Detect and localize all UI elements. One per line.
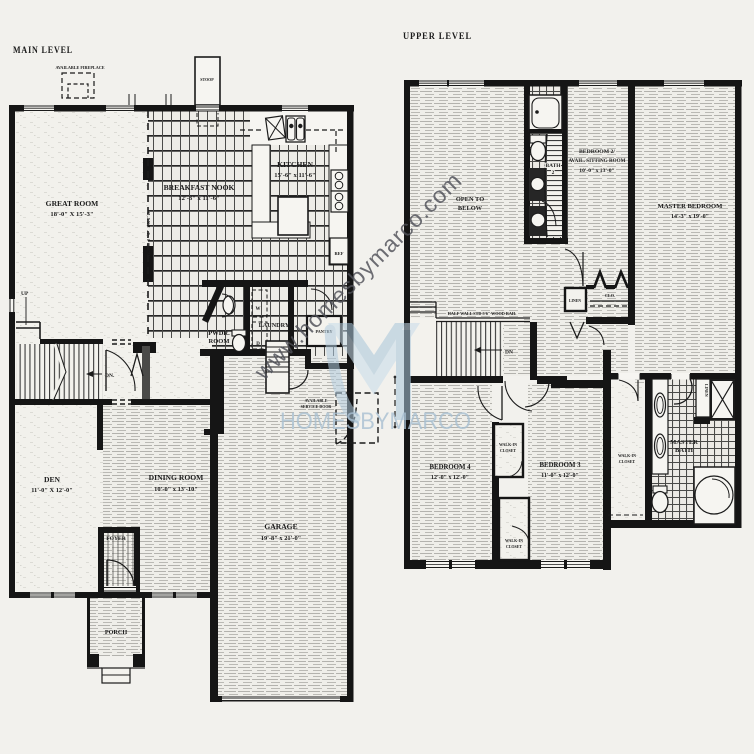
svg-text:BEDROOM 3: BEDROOM 3 (540, 462, 582, 469)
svg-text:DN: DN (505, 350, 513, 356)
svg-text:PORCH: PORCH (105, 629, 128, 636)
svg-text:MAIN LEVEL: MAIN LEVEL (13, 46, 73, 56)
svg-text:CLOSET: CLOSET (506, 544, 523, 549)
svg-text:11'-0" x 12'-0": 11'-0" x 12'-0" (541, 473, 579, 479)
svg-text:CLOSET: CLOSET (500, 448, 517, 453)
svg-text:LINEN: LINEN (704, 384, 709, 397)
svg-text:CLOSET: CLOSET (619, 459, 636, 464)
svg-text:19'-8" x 21'-0": 19'-8" x 21'-0" (261, 535, 301, 542)
svg-text:WALK-IN: WALK-IN (505, 538, 523, 543)
svg-text:AVAIL. SITTING ROOM: AVAIL. SITTING ROOM (569, 158, 626, 164)
svg-text:12'-0" x 12'-0": 12'-0" x 12'-0" (431, 475, 469, 481)
svg-text:UPPER LEVEL: UPPER LEVEL (403, 32, 472, 42)
svg-text:FOYER: FOYER (106, 536, 127, 542)
svg-text:HALF WALL STD 5'6" WOOD RAIL: HALF WALL STD 5'6" WOOD RAIL (448, 311, 517, 316)
svg-text:BATH: BATH (675, 447, 693, 454)
svg-text:BATH: BATH (546, 163, 562, 169)
svg-text:GREAT ROOM: GREAT ROOM (46, 199, 99, 208)
svg-text:GARAGE: GARAGE (264, 522, 297, 531)
svg-text:ROOM: ROOM (209, 338, 230, 345)
svg-text:11'-0" X 12'-0": 11'-0" X 12'-0" (31, 487, 73, 494)
svg-text:D: D (256, 342, 260, 347)
svg-text:2: 2 (552, 170, 555, 176)
svg-text:AVAILABLE: AVAILABLE (305, 398, 328, 403)
svg-text:10'-0" x 13'-0": 10'-0" x 13'-0" (579, 168, 614, 174)
svg-text:STOOP: STOOP (200, 77, 214, 82)
svg-text:BELOW: BELOW (458, 205, 483, 212)
svg-text:PWDR.: PWDR. (208, 330, 230, 337)
svg-text:12'-3" x 11'-6": 12'-3" x 11'-6" (178, 195, 219, 202)
svg-text:WALK-IN: WALK-IN (618, 453, 636, 458)
svg-text:W: W (256, 307, 261, 312)
svg-text:14'-3" x 19'-0": 14'-3" x 19'-0" (671, 214, 709, 220)
svg-text:LINEN: LINEN (569, 299, 581, 303)
svg-text:KITCHEN: KITCHEN (277, 160, 313, 169)
svg-text:10'-0" x 13'-10": 10'-0" x 13'-10" (154, 486, 198, 493)
svg-text:AVAIL 2'-0" EXT'D: AVAIL 2'-0" EXT'D (146, 211, 151, 258)
svg-text:DINING ROOM: DINING ROOM (149, 473, 204, 482)
svg-text:HOMESBYMARCO: HOMESBYMARCO (280, 408, 471, 435)
svg-text:LAUNDRY: LAUNDRY (259, 322, 290, 329)
svg-text:15'-6" x 11'-6": 15'-6" x 11'-6" (274, 172, 315, 179)
svg-text:18'-0" X 15'-3": 18'-0" X 15'-3" (50, 211, 93, 218)
svg-text:OPEN TO: OPEN TO (456, 196, 484, 203)
svg-text:BREAKFAST NOOK: BREAKFAST NOOK (164, 183, 235, 192)
svg-text:BEDROOM 2/: BEDROOM 2/ (579, 149, 615, 155)
svg-text:MASTER BEDROOM: MASTER BEDROOM (658, 203, 723, 210)
svg-text:DEN: DEN (44, 475, 61, 484)
svg-text:UP: UP (21, 291, 29, 297)
svg-text:MASTER: MASTER (670, 439, 698, 446)
svg-text:AVAILABLE FIREPLACE: AVAILABLE FIREPLACE (55, 65, 104, 70)
svg-text:REF: REF (335, 251, 344, 256)
svg-text:CLO.: CLO. (605, 293, 615, 298)
svg-text:BEDROOM 4: BEDROOM 4 (430, 464, 472, 471)
svg-text:WALK-IN: WALK-IN (499, 442, 517, 447)
